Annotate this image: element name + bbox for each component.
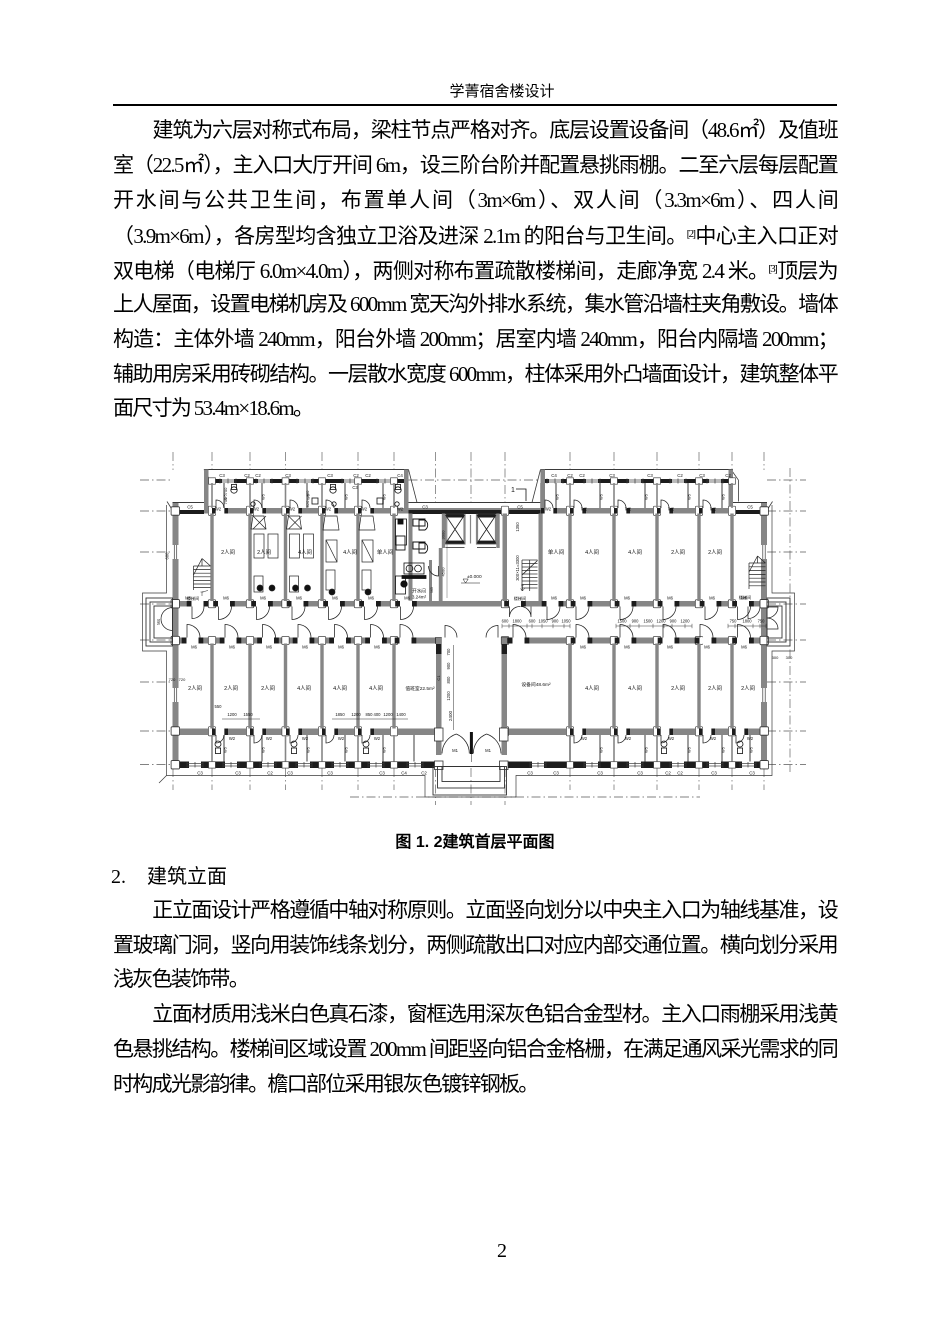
svg-text:W5: W5 (645, 494, 649, 500)
svg-text:700: 700 (223, 487, 228, 494)
svg-text:W5: W5 (722, 747, 726, 753)
svg-text:4人间: 4人间 (333, 684, 347, 692)
svg-text:550: 550 (215, 704, 223, 709)
svg-text:4人间: 4人间 (298, 548, 312, 556)
svg-text:W2: W2 (215, 507, 222, 512)
svg-text:M6: M6 (296, 596, 302, 601)
svg-text:M6: M6 (191, 645, 197, 650)
svg-text:1800: 1800 (512, 619, 522, 624)
svg-text:W2: W2 (625, 736, 632, 741)
svg-text:C3: C3 (422, 505, 428, 510)
svg-text:W5: W5 (722, 494, 726, 500)
svg-text:C3: C3 (197, 771, 203, 776)
svg-text:M6: M6 (332, 596, 338, 601)
svg-text:M6: M6 (223, 596, 229, 601)
svg-text:820: 820 (305, 500, 310, 507)
svg-text:M6: M6 (704, 645, 710, 650)
svg-text:2人间: 2人间 (671, 548, 685, 556)
svg-text:2400: 2400 (448, 710, 453, 721)
svg-text:W2: W2 (668, 507, 675, 512)
svg-text:C3: C3 (609, 473, 615, 478)
svg-text:C2: C2 (365, 473, 371, 478)
svg-text:W2: W2 (747, 736, 754, 741)
svg-text:C3: C3 (327, 473, 333, 478)
svg-text:3.24m²: 3.24m² (412, 595, 427, 600)
svg-text:M6: M6 (404, 596, 410, 601)
svg-text:W2: W2 (625, 507, 632, 512)
svg-text:4人间: 4人间 (585, 548, 599, 556)
svg-text:W2: W2 (710, 736, 717, 741)
svg-text:W5: W5 (688, 747, 692, 753)
svg-text:W2: W2 (374, 736, 381, 741)
svg-text:720: 720 (179, 677, 186, 682)
svg-text:2人间: 2人间 (221, 548, 235, 556)
svg-text:M6: M6 (667, 645, 673, 650)
svg-text:900: 900 (632, 619, 640, 624)
svg-text:1200: 1200 (227, 712, 237, 717)
svg-text:M6: M6 (551, 596, 557, 601)
svg-text:C3: C3 (699, 473, 705, 478)
svg-text:C2: C2 (244, 473, 250, 478)
svg-text:1500: 1500 (643, 619, 653, 624)
svg-text:600: 600 (529, 619, 537, 624)
svg-text:4人间: 4人间 (297, 684, 311, 692)
svg-text:C3: C3 (235, 771, 241, 776)
svg-text:900: 900 (670, 619, 678, 624)
svg-text:1850: 1850 (335, 712, 345, 717)
svg-text:3000: 3000 (441, 530, 446, 540)
svg-text:W2: W2 (229, 736, 236, 741)
svg-text:1200: 1200 (383, 712, 393, 717)
svg-text:4人间: 4人间 (369, 684, 383, 692)
svg-text:C3: C3 (352, 485, 358, 490)
svg-text:W5: W5 (262, 747, 266, 753)
svg-text:M1: M1 (452, 748, 458, 753)
svg-text:W2: W2 (302, 736, 309, 741)
svg-text:单人间: 单人间 (377, 548, 393, 556)
svg-text:300: 300 (772, 655, 779, 660)
svg-text:1200: 1200 (351, 712, 361, 717)
svg-text:M6: M6 (580, 596, 586, 601)
svg-text:C1: C1 (436, 675, 441, 681)
svg-text:M6: M6 (709, 596, 715, 601)
svg-text:W5: W5 (262, 494, 266, 500)
svg-text:M3: M3 (429, 586, 434, 592)
svg-text:700: 700 (446, 648, 451, 656)
svg-text:C3: C3 (379, 771, 385, 776)
svg-text:W2: W2 (710, 507, 717, 512)
svg-text:C3: C3 (749, 771, 755, 776)
svg-text:1500: 1500 (617, 619, 627, 624)
svg-text:1050: 1050 (561, 619, 571, 624)
svg-text:2人间: 2人间 (261, 684, 275, 692)
svg-text:1550: 1550 (243, 712, 253, 717)
svg-text:C3: C3 (285, 473, 291, 478)
svg-text:C3: C3 (711, 771, 717, 776)
svg-text:W2: W2 (581, 736, 588, 741)
svg-text:M6: M6 (185, 596, 191, 601)
svg-text:700: 700 (223, 497, 228, 504)
svg-text:C2: C2 (421, 771, 427, 776)
svg-text:W5: W5 (688, 494, 692, 500)
svg-text:750: 750 (758, 619, 766, 624)
svg-text:4500: 4500 (441, 567, 446, 577)
svg-text:M6: M6 (624, 596, 630, 601)
svg-text:C3: C3 (597, 771, 603, 776)
svg-text:W5: W5 (600, 747, 604, 753)
svg-text:M6: M6 (624, 645, 630, 650)
svg-text:开水间: 开水间 (412, 588, 426, 595)
svg-text:W5: W5 (383, 747, 387, 753)
svg-text:C2: C2 (567, 473, 573, 478)
svg-text:300: 300 (786, 655, 793, 660)
svg-text:460: 460 (305, 490, 310, 497)
svg-text:W2: W2 (325, 507, 332, 512)
svg-text:M6: M6 (374, 645, 380, 650)
svg-text:2人间: 2人间 (224, 684, 238, 692)
svg-text:4人间: 4人间 (585, 684, 599, 692)
svg-text:W5: W5 (750, 747, 754, 753)
svg-text:W2: W2 (253, 507, 260, 512)
svg-text:C4: C4 (551, 473, 557, 478)
svg-text:1200: 1200 (680, 619, 690, 624)
svg-text:C3: C3 (219, 473, 225, 478)
svg-text:W2: W2 (581, 507, 588, 512)
svg-text:1800: 1800 (742, 619, 752, 624)
svg-text:C2: C2 (725, 473, 731, 478)
svg-text:4人间: 4人间 (628, 684, 642, 692)
svg-text:C2: C2 (677, 771, 683, 776)
svg-text:850: 850 (366, 712, 374, 717)
svg-text:C3: C3 (637, 771, 643, 776)
svg-text:M6: M6 (229, 645, 235, 650)
svg-text:设备间48.6m²: 设备间48.6m² (521, 681, 551, 688)
svg-text:4人间: 4人间 (628, 548, 642, 556)
svg-text:W2: W2 (397, 507, 404, 512)
svg-text:M6: M6 (741, 645, 747, 650)
svg-text:1: 1 (511, 487, 515, 494)
svg-text:C4: C4 (401, 771, 407, 776)
svg-text:1200: 1200 (446, 691, 451, 701)
svg-text:C3: C3 (527, 771, 533, 776)
svg-text:W5: W5 (307, 747, 311, 753)
svg-text:1200: 1200 (656, 619, 666, 624)
svg-text:300×11=3300: 300×11=3300 (515, 555, 520, 581)
svg-text:W5: W5 (345, 494, 349, 500)
svg-text:M6: M6 (368, 596, 374, 601)
svg-text:720: 720 (169, 677, 176, 682)
svg-text:M6: M6 (302, 645, 308, 650)
svg-text:2人间: 2人间 (708, 548, 722, 556)
svg-text:900: 900 (446, 662, 451, 670)
svg-text:600: 600 (165, 552, 170, 560)
svg-text:1400: 1400 (396, 712, 406, 717)
svg-text:400: 400 (374, 712, 382, 717)
svg-text:C3: C3 (647, 473, 653, 478)
svg-text:C5: C5 (187, 505, 193, 510)
svg-text:W2: W2 (266, 736, 273, 741)
svg-text:C5: C5 (517, 505, 523, 510)
svg-text:C3: C3 (327, 771, 333, 776)
svg-text:M6: M6 (338, 645, 344, 650)
svg-text:1050: 1050 (538, 619, 548, 624)
svg-text:2人间: 2人间 (708, 684, 722, 692)
svg-text:W2: W2 (338, 736, 345, 741)
svg-text:C2: C2 (255, 473, 261, 478)
svg-text:C2: C2 (677, 473, 683, 478)
svg-text:W5: W5 (224, 747, 228, 753)
svg-text:600: 600 (502, 619, 510, 624)
svg-text:2人间: 2人间 (188, 684, 202, 692)
svg-text:900: 900 (552, 619, 560, 624)
svg-text:W5: W5 (383, 494, 387, 500)
svg-text:2人间: 2人间 (257, 548, 271, 556)
svg-text:2人间: 2人间 (741, 684, 755, 692)
svg-text:W5: W5 (600, 494, 604, 500)
svg-text:±0.000: ±0.000 (467, 574, 482, 580)
svg-text:M6: M6 (667, 596, 673, 601)
svg-text:C5: C5 (747, 505, 753, 510)
svg-text:M6: M6 (266, 645, 272, 650)
svg-text:W2: W2 (545, 507, 552, 512)
svg-text:4人间: 4人间 (343, 548, 357, 556)
svg-text:单人间: 单人间 (548, 548, 564, 556)
svg-text:C2: C2 (579, 473, 585, 478)
svg-text:800: 800 (446, 676, 451, 684)
svg-text:M1: M1 (485, 748, 491, 753)
svg-text:W2: W2 (361, 507, 368, 512)
svg-text:750: 750 (730, 619, 738, 624)
svg-text:W5: W5 (556, 494, 560, 500)
svg-text:M6: M6 (580, 645, 586, 650)
svg-text:W2: W2 (289, 507, 296, 512)
svg-text:1350: 1350 (515, 522, 520, 532)
svg-text:W5: W5 (345, 747, 349, 753)
svg-text:楼梯间: 楼梯间 (514, 595, 527, 602)
svg-text:C3: C3 (287, 771, 293, 776)
svg-text:W2: W2 (668, 736, 675, 741)
svg-text:C2: C2 (267, 771, 273, 776)
svg-text:M4: M4 (156, 618, 161, 624)
svg-text:C4: C4 (397, 473, 403, 478)
svg-text:值班室22.5m²: 值班室22.5m² (405, 685, 435, 692)
svg-text:M6: M6 (260, 596, 266, 601)
svg-text:2人间: 2人间 (671, 684, 685, 692)
svg-text:M6: M6 (741, 596, 747, 601)
svg-text:C2: C2 (353, 473, 359, 478)
svg-text:C2: C2 (665, 771, 671, 776)
svg-text:C3: C3 (553, 771, 559, 776)
svg-text:W5: W5 (645, 747, 649, 753)
